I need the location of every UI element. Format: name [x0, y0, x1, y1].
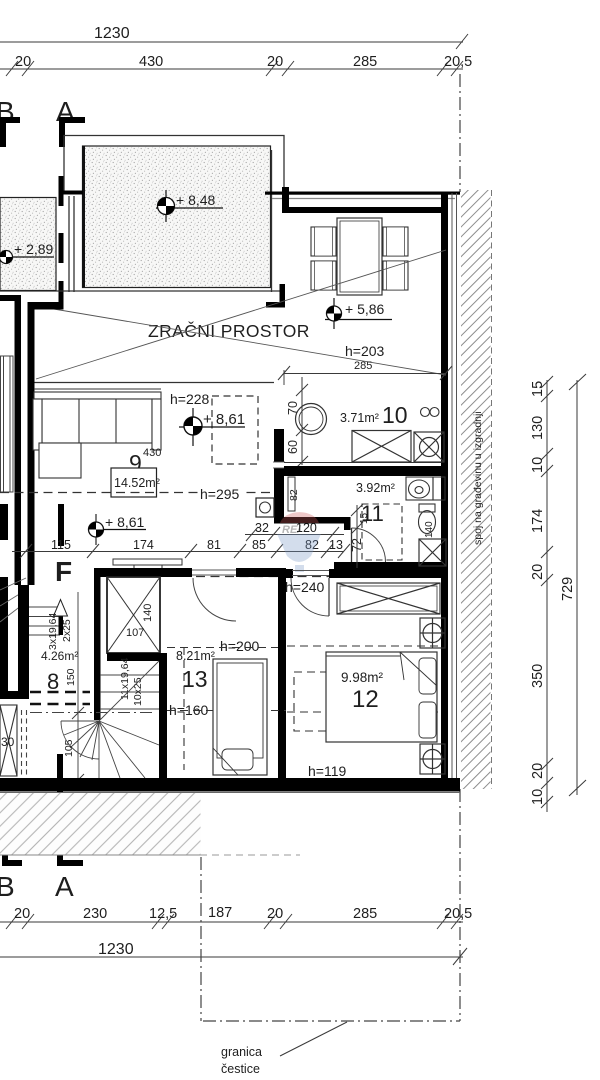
- svg-text:230: 230: [83, 906, 107, 922]
- svg-text:ZRAČNI PROSTOR: ZRAČNI PROSTOR: [148, 320, 310, 341]
- svg-text:12,5: 12,5: [149, 906, 177, 922]
- svg-text:30: 30: [1, 735, 15, 749]
- svg-text:32: 32: [255, 521, 269, 535]
- svg-text:13: 13: [329, 538, 343, 552]
- svg-text:20: 20: [267, 54, 283, 70]
- svg-text:81: 81: [207, 538, 221, 552]
- svg-text:10: 10: [530, 457, 546, 473]
- svg-text:2x25: 2x25: [61, 619, 73, 642]
- svg-text:h=119: h=119: [308, 763, 346, 779]
- svg-text:14.52m²: 14.52m²: [114, 476, 160, 490]
- svg-text:1230: 1230: [94, 25, 130, 42]
- svg-text:430: 430: [143, 447, 161, 459]
- svg-text:187: 187: [208, 905, 232, 921]
- svg-text:105: 105: [63, 739, 75, 757]
- svg-text:4.26m²: 4.26m²: [41, 649, 78, 663]
- svg-text:10: 10: [382, 402, 408, 428]
- svg-text:285: 285: [353, 54, 377, 70]
- svg-text:20,5: 20,5: [444, 906, 472, 922]
- svg-text:115: 115: [51, 538, 71, 552]
- svg-text:13: 13: [182, 666, 208, 692]
- svg-text:F: F: [55, 556, 72, 587]
- svg-text:8.21m²: 8.21m²: [176, 649, 215, 663]
- svg-text:20,5: 20,5: [444, 54, 472, 70]
- svg-text:150: 150: [65, 668, 77, 686]
- svg-text:1230: 1230: [98, 941, 134, 958]
- svg-text:11x19,64: 11x19,64: [119, 657, 131, 700]
- svg-text:+ 8,61: + 8,61: [105, 514, 145, 530]
- svg-text:+ 8,48: + 8,48: [176, 192, 216, 208]
- svg-text:15: 15: [359, 512, 370, 524]
- svg-text:9.98m²: 9.98m²: [341, 670, 384, 685]
- svg-text:10: 10: [530, 789, 546, 805]
- svg-text:15: 15: [530, 381, 546, 397]
- svg-text:h=295: h=295: [200, 486, 240, 502]
- svg-text:h=203: h=203: [345, 343, 385, 359]
- svg-text:3.71m²: 3.71m²: [340, 411, 379, 425]
- svg-text:285: 285: [354, 360, 372, 372]
- svg-text:174: 174: [530, 509, 546, 533]
- svg-text:+ 8,61: + 8,61: [203, 411, 245, 428]
- svg-text:140: 140: [142, 604, 154, 622]
- svg-text:70: 70: [286, 401, 300, 415]
- svg-text:A: A: [55, 871, 74, 902]
- svg-text:RE/: RE/: [282, 524, 302, 536]
- svg-text:3x19,64: 3x19,64: [47, 612, 59, 650]
- svg-text:h=200: h=200: [220, 638, 260, 654]
- svg-text:h=228: h=228: [170, 391, 210, 407]
- svg-text:20: 20: [15, 54, 31, 70]
- svg-text:20: 20: [530, 763, 546, 779]
- svg-text:20: 20: [530, 564, 546, 580]
- svg-text:430: 430: [139, 54, 163, 70]
- svg-text:140: 140: [424, 521, 435, 538]
- svg-text:82: 82: [288, 489, 300, 501]
- svg-text:20: 20: [14, 906, 30, 922]
- svg-text:60: 60: [286, 440, 300, 454]
- svg-text:8: 8: [47, 669, 59, 694]
- svg-text:20: 20: [267, 906, 283, 922]
- svg-text:174: 174: [133, 538, 154, 552]
- svg-text:+ 2,89: + 2,89: [14, 241, 54, 257]
- svg-text:B: B: [0, 871, 15, 902]
- svg-text:+ 5,86: + 5,86: [345, 301, 385, 317]
- svg-text:granica: granica: [221, 1045, 262, 1059]
- svg-text:12: 12: [352, 686, 379, 713]
- svg-text:350: 350: [530, 664, 546, 688]
- svg-text:čestice: čestice: [221, 1062, 260, 1076]
- svg-text:729: 729: [560, 577, 576, 601]
- svg-text:107: 107: [126, 627, 144, 639]
- svg-text:spoj na građevinu u izgradnji: spoj na građevinu u izgradnji: [472, 411, 484, 545]
- svg-text:285: 285: [353, 906, 377, 922]
- svg-text:85: 85: [252, 538, 266, 552]
- svg-text:130: 130: [530, 416, 546, 440]
- svg-text:3.92m²: 3.92m²: [356, 481, 395, 495]
